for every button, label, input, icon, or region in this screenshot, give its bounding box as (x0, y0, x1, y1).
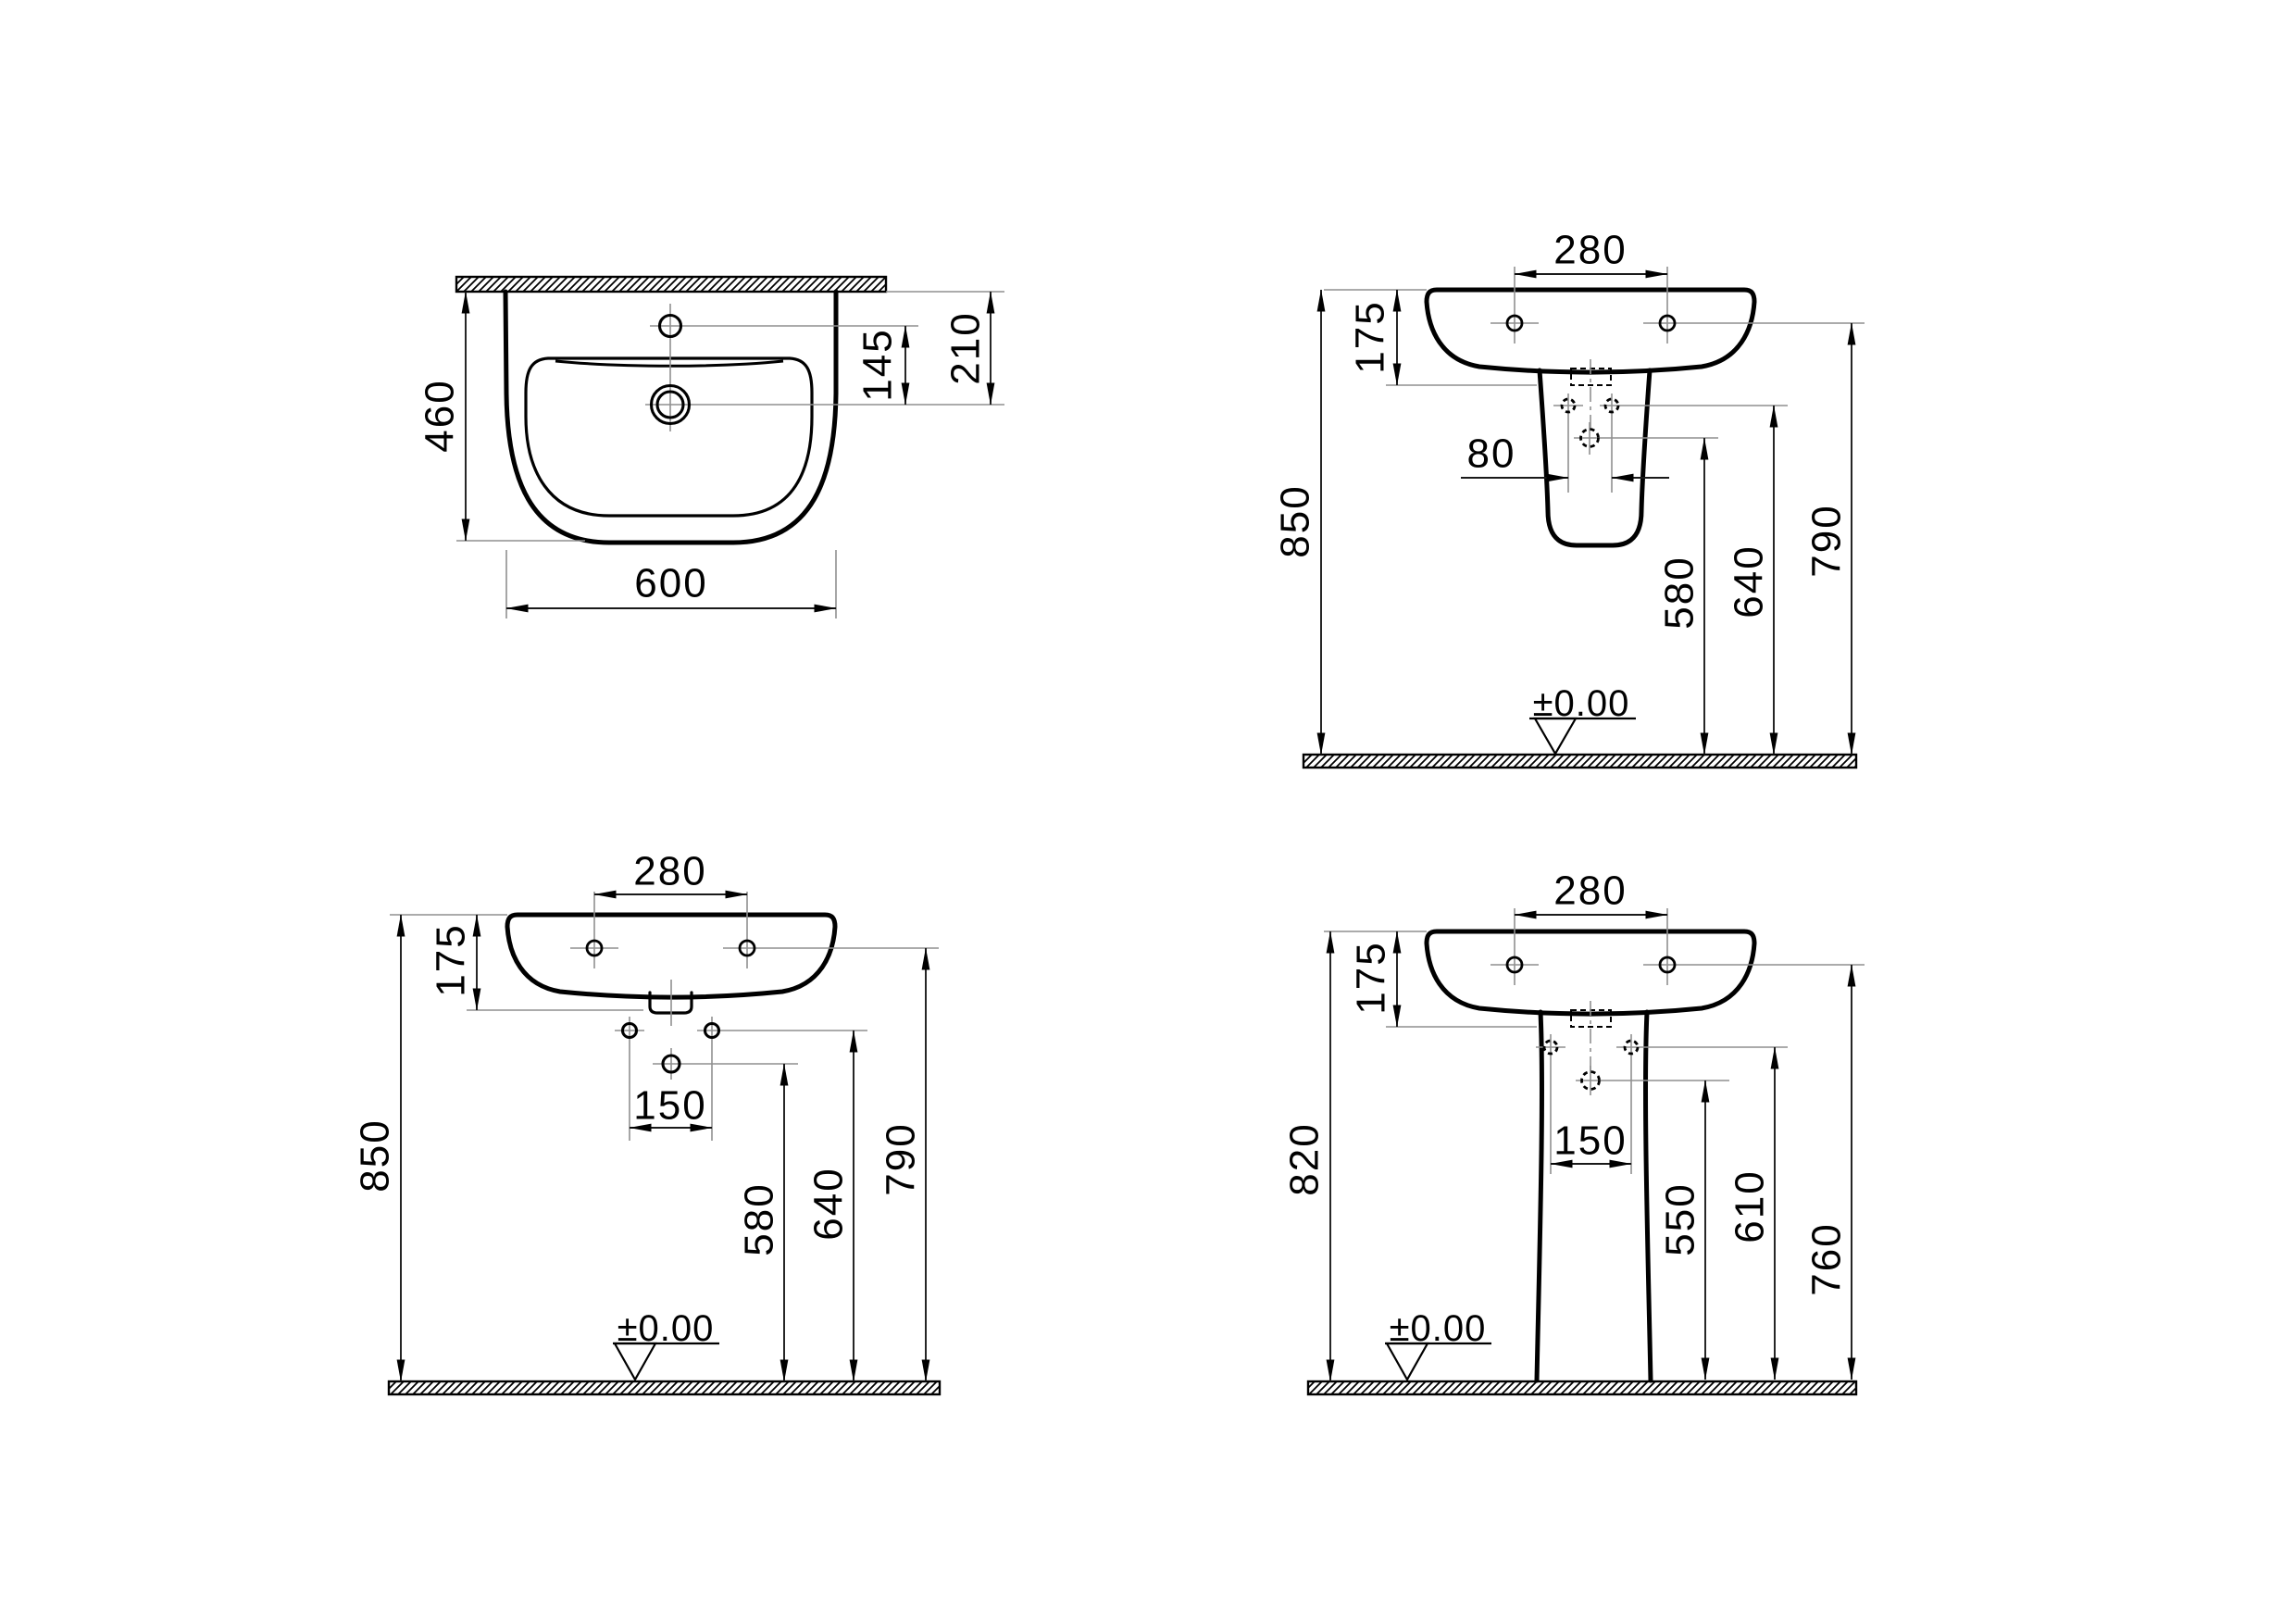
basin-rim-line (555, 361, 783, 366)
dim-pd-fixing-holes: 150 (1553, 1118, 1627, 1163)
dim-pd-fixing-height: 610 (1727, 1169, 1772, 1243)
dim-wh-drain-height: 580 (736, 1182, 781, 1255)
plan-view: 600 460 145 210 (417, 277, 1004, 618)
wall-section (456, 277, 886, 292)
dim-wh-rim-height: 850 (352, 1118, 397, 1192)
dim-sp-tap-holes: 280 (1553, 227, 1627, 272)
dim-plan-depth: 460 (417, 379, 462, 452)
dim-wh-mounting-height: 790 (878, 1122, 923, 1195)
dim-pd-tap-holes: 280 (1553, 868, 1627, 913)
datum-level-icon: ±0.00 (1529, 683, 1636, 754)
dim-plan-width: 600 (634, 560, 707, 606)
dim-sp-fixing-height: 640 (1726, 544, 1771, 618)
pedestal-right-edge (1646, 1012, 1651, 1380)
dim-pd-rim-height: 820 (1281, 1122, 1327, 1195)
floor-section (1308, 1381, 1856, 1394)
dim-plan-wall-to-drain: 210 (942, 311, 988, 384)
dim-pd-mounting-height: 760 (1803, 1222, 1849, 1295)
front-view-semi-pedestal: 280 175 80 850 580 640 790 ±0.00 (1272, 227, 1865, 768)
dim-pd-drain-height: 550 (1657, 1182, 1703, 1255)
floor-section (389, 1381, 940, 1394)
basin-inner-bowl (526, 358, 812, 516)
drawing-canvas: 600 460 145 210 (0, 0, 2295, 1624)
front-view-pedestal: 280 175 820 150 550 610 760 ±0.00 (1281, 868, 1865, 1394)
dim-pd-basin-depth: 175 (1348, 941, 1393, 1014)
washbasin-technical-drawing: 600 460 145 210 (0, 0, 2295, 1624)
dim-sp-fixing-holes: 80 (1467, 431, 1516, 476)
dim-sp-mounting-height: 790 (1803, 504, 1849, 577)
dim-wh-basin-depth: 175 (428, 923, 473, 996)
dim-wh-tap-holes: 280 (633, 848, 706, 893)
dim-sp-rim-height: 850 (1272, 484, 1317, 557)
dim-sp-drain-height: 580 (1656, 556, 1702, 629)
dim-wh-fixing-height: 640 (805, 1167, 851, 1240)
dim-sp-basin-depth: 175 (1347, 300, 1392, 373)
semi-pedestal-outline (1540, 370, 1650, 545)
pedestal-left-edge (1537, 1012, 1541, 1380)
dim-plan-tap-to-drain: 145 (854, 328, 900, 401)
datum-level-icon: ±0.00 (613, 1308, 719, 1380)
front-view-wall-hung: 280 175 850 150 580 640 790 ±0.00 (352, 848, 940, 1394)
floor-section (1303, 755, 1856, 768)
datum-level-icon: ±0.00 (1385, 1308, 1491, 1380)
dim-wh-fixing-holes: 150 (633, 1082, 706, 1128)
